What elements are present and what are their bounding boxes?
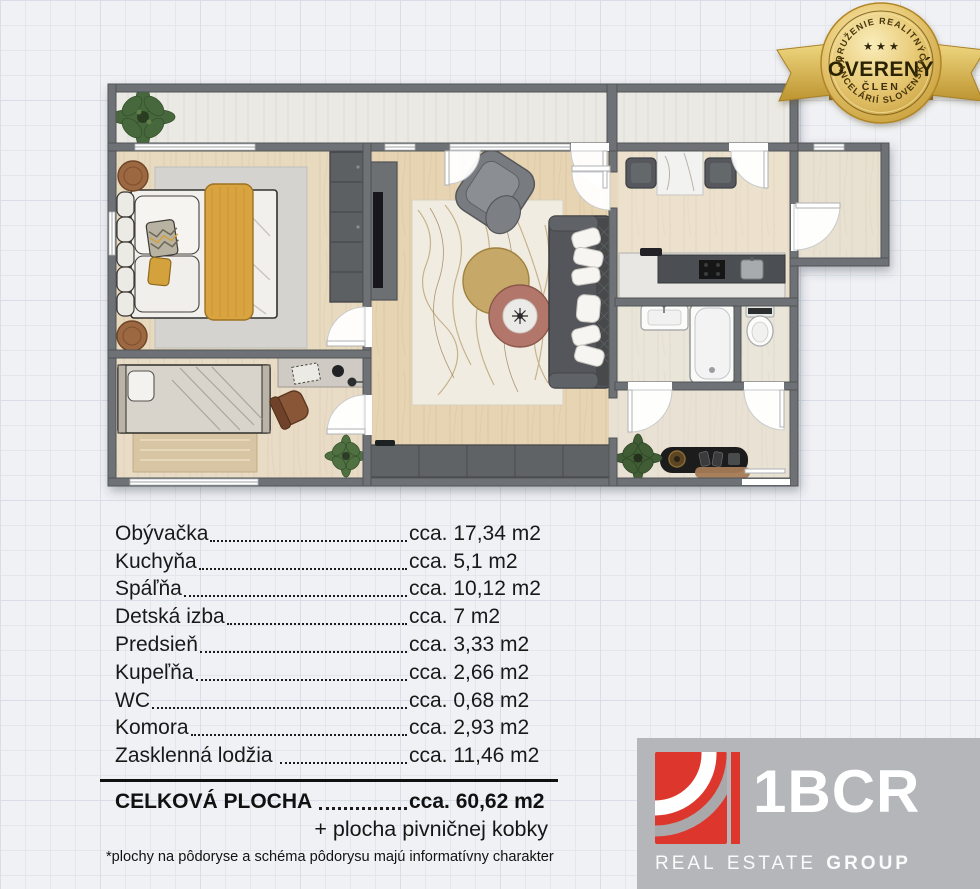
flyer-page: ZDRUŽENIE REALITNÝCH ★ ★ ★ OVERENÝ ČLEN … <box>0 0 980 889</box>
brand-tagline: REAL ESTATE GROUP <box>655 853 911 875</box>
entry-mat <box>695 467 750 478</box>
room-name: Predsieň <box>115 632 198 658</box>
room-area: cca. 2,93 m2 <box>409 715 551 741</box>
floor-plan: ZDRUŽENIE REALITNÝCH ★ ★ ★ OVERENÝ ČLEN … <box>0 0 980 520</box>
room-name: Zasklenná lodžia <box>115 743 278 769</box>
room-area: cca. 17,34 m2 <box>409 521 551 547</box>
room-area: cca. 5,1 m2 <box>409 549 551 575</box>
area-row: Kuchyňa cca. 5,1 m2 <box>115 547 551 575</box>
dot-leader <box>200 651 407 653</box>
kids-room-rug <box>133 433 257 472</box>
area-row: Detská izba cca. 7 m2 <box>115 602 551 630</box>
bathtub <box>690 303 735 384</box>
apartment-plan <box>108 84 889 486</box>
area-row: WC cca. 0,68 m2 <box>115 686 551 714</box>
tagline-word-group: GROUP <box>826 853 911 875</box>
total-divider <box>100 779 558 782</box>
area-row: Obývačka cca. 17,34 m2 <box>115 519 551 547</box>
badge-stars: ★ ★ ★ <box>863 41 899 53</box>
cellar-note: + plocha pivničnej kobky <box>118 817 548 842</box>
badge-member: ČLEN <box>862 80 901 93</box>
room-name: Komora <box>115 715 189 741</box>
tagline-word-estate: ESTATE <box>727 853 816 875</box>
headboard-cushions <box>117 192 134 316</box>
room-area: cca. 11,46 m2 <box>409 743 551 769</box>
room-name: Kupeľňa <box>115 660 194 686</box>
total-area-row: CELKOVÁ PLOCHA cca. 60,62 m2 <box>115 787 551 815</box>
bedside-table-top <box>118 161 148 191</box>
desk-lamp <box>332 365 344 377</box>
room-area: cca. 3,33 m2 <box>409 632 551 658</box>
room-name: Kuchyňa <box>115 549 197 575</box>
agency-logo: 1BCR REAL ESTATE GROUP <box>637 738 980 889</box>
toilet <box>746 306 774 346</box>
bathroom-sink <box>641 304 688 330</box>
room-name: Detská izba <box>115 604 225 630</box>
dot-leader <box>184 595 407 597</box>
small-appliance <box>640 248 662 256</box>
kitchen-counter <box>619 248 785 300</box>
dot-leader <box>210 540 407 542</box>
sofa <box>549 216 612 388</box>
area-row: Predsieň cca. 3,33 m2 <box>115 630 551 658</box>
dot-leader <box>280 762 407 764</box>
area-row: Zasklenná lodžia cca. 11,46 m2 <box>115 741 551 769</box>
double-bed <box>117 184 277 320</box>
dot-leader <box>191 734 407 736</box>
disclaimer-note: *plochy na pôdoryse a schéma pôdorysu ma… <box>106 849 576 865</box>
brand-name: 1BCR <box>753 762 920 822</box>
area-row: Komora cca. 2,93 m2 <box>115 714 551 742</box>
area-row: Spáľňa cca. 10,12 m2 <box>115 575 551 603</box>
total-label: CELKOVÁ PLOCHA <box>115 789 317 815</box>
room-name: Obývačka <box>115 521 208 547</box>
logo-mark <box>655 752 740 844</box>
sideboard <box>371 440 611 477</box>
bedside-table-bottom <box>117 321 147 351</box>
dot-leader <box>196 679 407 681</box>
dot-leader <box>199 568 407 570</box>
dot-leader <box>319 807 407 810</box>
room-name: Spáľňa <box>115 576 182 602</box>
tagline-word-real: REAL <box>655 853 717 875</box>
total-value: cca. 60,62 m2 <box>409 789 551 815</box>
wardrobe <box>330 152 363 302</box>
kitchen-table <box>657 151 703 195</box>
tv-unit <box>371 162 397 300</box>
dot-leader <box>227 623 407 625</box>
room-name: WC <box>115 688 150 714</box>
room-area: cca. 0,68 m2 <box>409 688 551 714</box>
room-area: cca. 10,12 m2 <box>409 576 551 602</box>
room-area: cca. 7 m2 <box>409 604 551 630</box>
area-list: Obývačka cca. 17,34 m2 Kuchyňa cca. 5,1 … <box>115 519 551 769</box>
area-row: Kupeľňa cca. 2,66 m2 <box>115 658 551 686</box>
accent-pillow-yellow <box>148 257 172 286</box>
stove <box>699 260 725 279</box>
kitchen-sink <box>741 260 763 279</box>
kids-desk <box>278 358 368 387</box>
room-area: cca. 2,66 m2 <box>409 660 551 686</box>
kids-bed <box>118 365 270 433</box>
dot-leader <box>152 707 407 709</box>
